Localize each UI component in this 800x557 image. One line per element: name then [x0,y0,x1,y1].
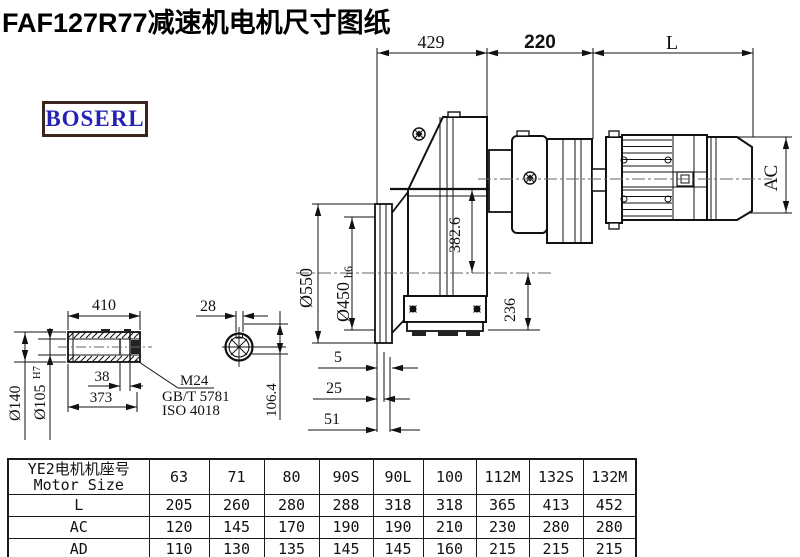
frame-size-column-header: 112M [476,459,529,495]
dim-382-label: 382.6 [447,217,464,253]
frame-size-column-header: 63 [149,459,209,495]
dim-220-label: 220 [524,32,556,53]
dim-ac-label: AC [761,165,782,191]
motor-adapter-outline [489,131,608,243]
shaft-end-view [222,327,286,367]
table-row: L205260280288318318365413452 [8,495,636,517]
table-cell: 280 [529,517,583,539]
dim-shaft-diameters [14,328,66,440]
table-cell: 318 [373,495,423,517]
spec-table: YE2电机机座号 Motor Size 63718090S90L100112M1… [7,458,637,557]
frame-size-column-header: 132S [529,459,583,495]
table-row: AC120145170190190210230280280 [8,517,636,539]
dim-450-tol-label: h6 [341,266,355,278]
frame-size-column-header: 71 [209,459,264,495]
frame-size-column-header: 90S [319,459,373,495]
technical-drawing-page: FAF127R77减速机电机尺寸图纸 BOSERL [0,0,800,557]
row-label: L [8,495,149,517]
table-cell: 120 [149,517,209,539]
frame-size-column-header: 80 [264,459,319,495]
table-cell: 190 [373,517,423,539]
table-cell: 280 [583,517,636,539]
table-cell: 318 [423,495,476,517]
row-label: AD [8,539,149,557]
frame-size-column-header: 90L [373,459,423,495]
frame-size-column-header: 100 [423,459,476,495]
motor-outline [606,131,752,229]
table-cell: 135 [264,539,319,557]
table-cell: 288 [319,495,373,517]
dim-51-label: 51 [324,411,340,428]
table-cell: 170 [264,517,319,539]
table-header-row: YE2电机机座号 Motor Size 63718090S90L100112M1… [8,459,636,495]
motor-size-header-en: Motor Size [9,477,149,494]
table-cell: 230 [476,517,529,539]
table-cell: 452 [583,495,636,517]
dim-550-label: Ø550 [296,268,316,308]
note-iso-label: ISO 4018 [162,403,220,419]
fan-cowl [707,137,752,220]
table-cell: 215 [583,539,636,557]
note-m24-label: M24 [180,373,209,389]
dim-L-label: L [666,32,678,54]
table-cell: 215 [476,539,529,557]
dim-450-label: Ø450 [333,282,353,322]
table-cell: 280 [264,495,319,517]
dim-106-label: 106.4 [264,383,280,417]
dim-429-label: 429 [418,32,445,52]
table-cell: 413 [529,495,583,517]
table-cell: 260 [209,495,264,517]
table-cell: 205 [149,495,209,517]
table-cell: 365 [476,495,529,517]
dim-5-label: 5 [334,349,342,366]
dim-105-label: Ø105 [32,384,49,420]
table-cell: 110 [149,539,209,557]
table-cell: 145 [373,539,423,557]
table-cell: 160 [423,539,476,557]
frame-size-column-header: 132M [583,459,636,495]
dim-140-label: Ø140 [7,385,24,421]
dim-25-label: 25 [326,380,342,397]
table-cell: 145 [319,539,373,557]
dim-28-label: 28 [200,298,216,315]
motor-size-header: YE2电机机座号 Motor Size [8,459,149,495]
motor-size-header-cn: YE2电机机座号 [9,461,149,478]
dim-373-label: 373 [90,390,113,406]
dim-236-label: 236 [502,298,519,322]
dimension-drawing: 429 220 L AC [0,0,800,457]
shaft-detail-outline [68,329,140,362]
dim-105-tol-label: H7 [32,366,43,379]
table-cell: 210 [423,517,476,539]
dim-38-label: 38 [95,369,110,385]
dim-410-label: 410 [92,297,116,314]
spec-table-wrap: YE2电机机座号 Motor Size 63718090S90L100112M1… [7,458,637,557]
table-cell: 130 [209,539,264,557]
table-cell: 215 [529,539,583,557]
row-label: AC [8,517,149,539]
table-cell: 190 [319,517,373,539]
table-cell: 145 [209,517,264,539]
table-row: AD110130135145145160215215215 [8,539,636,557]
